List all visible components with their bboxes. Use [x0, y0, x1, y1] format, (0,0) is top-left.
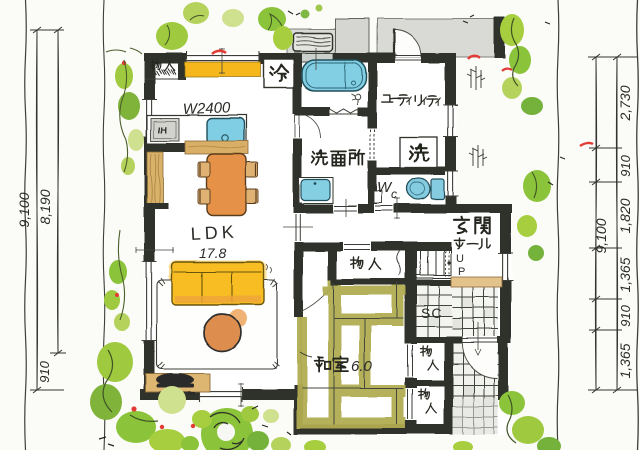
svg-text:9,100: 9,100: [593, 218, 609, 253]
svg-text:8,190: 8,190: [37, 189, 53, 224]
svg-text:SC: SC: [421, 305, 442, 321]
svg-text:910: 910: [37, 360, 52, 382]
svg-text:LDK: LDK: [190, 222, 238, 244]
svg-text:6.0: 6.0: [351, 358, 373, 375]
svg-text:1,365: 1,365: [617, 257, 633, 292]
svg-text:W2400: W2400: [183, 99, 232, 118]
svg-text:910: 910: [618, 304, 633, 326]
svg-text:9,100: 9,100: [16, 192, 32, 227]
svg-text:1,365: 1,365: [617, 343, 633, 378]
svg-text:1,820: 1,820: [617, 198, 633, 233]
svg-text:17.8: 17.8: [199, 245, 226, 261]
svg-text:U: U: [456, 253, 464, 265]
svg-text:2,730: 2,730: [617, 85, 633, 121]
svg-text:IH: IH: [158, 125, 167, 135]
svg-text:c: c: [391, 187, 397, 201]
svg-text:P: P: [458, 266, 465, 278]
svg-text:910: 910: [618, 154, 633, 176]
